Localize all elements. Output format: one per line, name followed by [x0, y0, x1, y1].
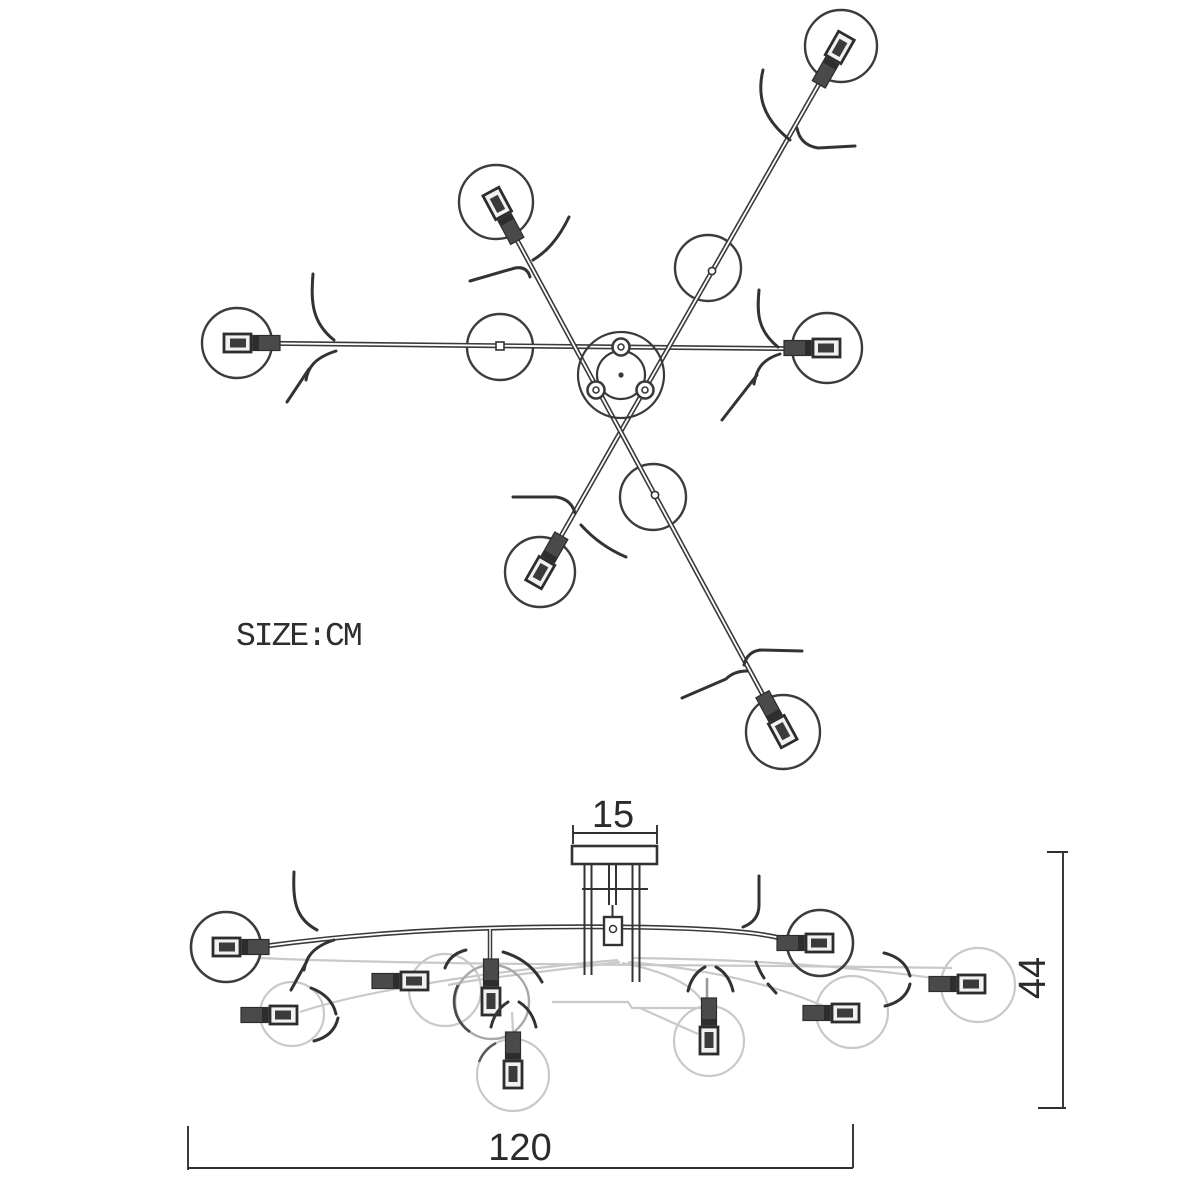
plan-view	[202, 10, 877, 769]
decorative-hooks-plan	[287, 70, 855, 698]
lamp-socket	[504, 1032, 522, 1088]
lamp-socket	[482, 959, 500, 1015]
faint-rod	[512, 1012, 513, 1032]
faint-far-arm	[448, 962, 620, 985]
lamp-socket	[929, 975, 985, 993]
technical-drawing-page: 15 44 120 SIZE:CM	[0, 0, 1199, 1200]
arm-joint	[651, 491, 658, 498]
lamp-socket	[755, 690, 798, 748]
lamp-drawing-svg: 15 44 120 SIZE:CM	[0, 0, 1199, 1200]
lamp-socket	[700, 998, 718, 1054]
lamp-socket	[372, 972, 428, 990]
canopy-plate	[572, 846, 657, 864]
lamp-socket	[777, 934, 833, 952]
lamp-socket	[784, 339, 840, 357]
size-unit-label: SIZE:CM	[236, 618, 361, 655]
junction-box	[604, 917, 622, 945]
faint-far-arm	[552, 1002, 702, 1008]
dim-label-canopy-width: 15	[592, 794, 634, 836]
lamp-socket	[803, 1004, 859, 1022]
elevation-faint-background	[258, 948, 1015, 1111]
glass-globe-highlight	[479, 1043, 496, 1062]
dim-label-height: 44	[1012, 957, 1054, 999]
dim-label-width: 120	[488, 1127, 551, 1169]
hub-arm-ring	[637, 382, 654, 399]
lamp-socket	[224, 334, 280, 352]
hub-arm-ring	[613, 339, 630, 356]
ceiling-canopy	[572, 846, 657, 982]
hub-center-dot	[618, 372, 623, 377]
glass-globe	[675, 235, 741, 301]
lamp-socket	[483, 187, 525, 245]
arm-joint	[496, 342, 504, 350]
lamp-socket	[526, 531, 569, 589]
lamp-socket	[241, 1006, 297, 1024]
lamp-socket	[213, 938, 269, 956]
arm-joint	[708, 267, 715, 274]
hub-arm-ring	[588, 382, 605, 399]
